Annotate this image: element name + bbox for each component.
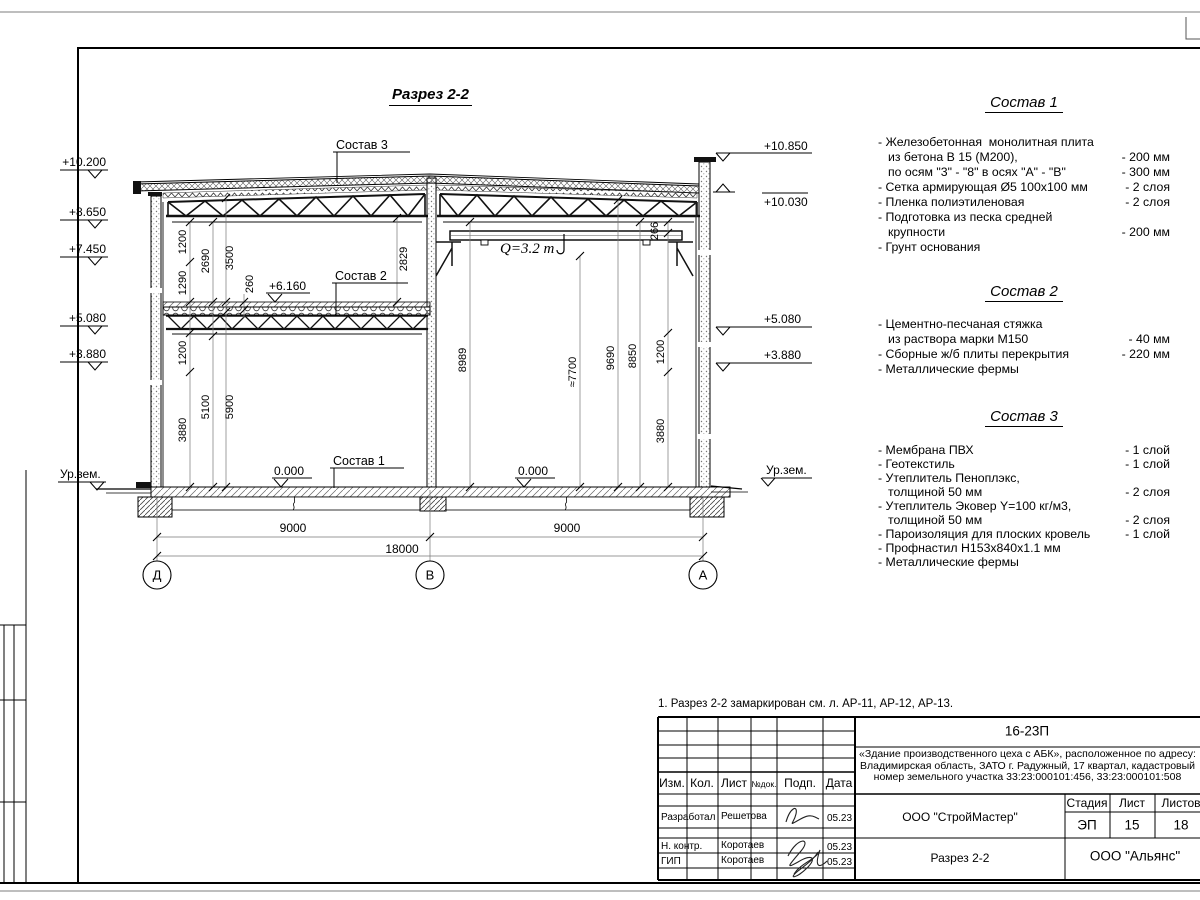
dim-2829: 2829: [398, 247, 410, 271]
level-zero-right: 0.000: [518, 464, 548, 478]
name-gip: Коротаев: [721, 855, 764, 866]
col-header-ndok: №док.: [752, 779, 777, 789]
dim-span-left: 9000: [280, 521, 307, 535]
composition-2-row: - Металлические фермы: [878, 362, 1170, 376]
contractor-company: ООО "СтройМастер": [902, 810, 1018, 824]
sheet-number: 15: [1124, 818, 1139, 833]
ground-level-right: Ур.зем.: [766, 463, 807, 477]
composition-2-row: - Цементно-песчаная стяжка: [878, 317, 1170, 331]
sheets-label: Листов: [1162, 796, 1200, 810]
composition-1-row: - Сетка армирующая Ø5 100х100 мм- 2 слоя: [878, 180, 1170, 194]
col-header-podp: Подп.: [784, 776, 816, 790]
callout-sostav-2: Состав 2: [335, 269, 387, 283]
date-developer: 05.23: [827, 813, 852, 824]
composition-3-title: Состав 3: [878, 408, 1170, 425]
composition-2-row: - Сборные ж/б плиты перекрытия- 220 мм: [878, 347, 1170, 361]
document-number: 16-23П: [1005, 724, 1049, 739]
date-gip: 05.23: [827, 857, 852, 868]
composition-1-row: - Пленка полиэтиленовая- 2 слоя: [878, 195, 1170, 209]
composition-3-row: - Утеплитель Пеноплэкс,: [878, 471, 1170, 485]
elevation-left-10200: +10.200: [46, 155, 106, 169]
grid-axis-a: А: [692, 568, 714, 583]
stage-label: Стадия: [1067, 796, 1108, 810]
name-ncontrol: Коротаев: [721, 840, 764, 851]
composition-2-row: из раствора марки М150- 40 мм: [878, 332, 1170, 346]
dim-9690: 9690: [605, 346, 617, 370]
elevation-right-10850: +10.850: [764, 139, 808, 153]
dim-1200-top: 1200: [177, 230, 189, 254]
dim-1200-right: 1200: [655, 340, 667, 364]
dim-3500: 3500: [224, 246, 236, 270]
dim-3880-right: 3880: [655, 419, 667, 443]
col-header-izm: Изм.: [659, 776, 685, 790]
level-zero-left: 0.000: [274, 464, 304, 478]
sheet-note: 1. Разрез 2-2 замаркирован см. л. АР-11,…: [658, 698, 953, 710]
signature-scribbles: [786, 808, 827, 876]
composition-1-row: - Грунт основания: [878, 240, 1170, 254]
sheet-section-name: Разрез 2-2: [931, 851, 990, 865]
callout-sostav-3: Состав 3: [336, 138, 388, 152]
composition-2-title: Состав 2: [878, 283, 1170, 300]
composition-1-row: - Подготовка из песка средней: [878, 210, 1170, 224]
dim-8989: 8989: [457, 348, 469, 372]
elevation-right-3880: +3.880: [764, 348, 801, 362]
dim-total: 18000: [385, 542, 418, 556]
dim-2690: 2690: [200, 249, 212, 273]
col-header-data: Дата: [826, 776, 853, 790]
grid-axis-v: В: [419, 568, 441, 583]
elevation-left-3880: +3.880: [46, 347, 106, 361]
project-description: «Здание производственного цеха с АБК», р…: [855, 749, 1200, 784]
elevation-left-5080: +5.080: [46, 311, 106, 325]
role-ncontrol: Н. контр.: [661, 841, 702, 852]
level-6160: +6.160: [269, 279, 306, 293]
elevation-right-10030: +10.030: [764, 195, 808, 209]
composition-3-row: - Геотекстиль- 1 слой: [878, 457, 1170, 471]
dim-8850: 8850: [627, 344, 639, 368]
dim-266: 266: [649, 222, 661, 240]
section-title: Разрез 2-2: [389, 86, 472, 106]
dim-span-right: 9000: [554, 521, 581, 535]
building-section: [96, 157, 748, 517]
grid-axis-d: Д: [146, 568, 168, 583]
composition-3-row: толщиной 50 мм- 2 слоя: [878, 485, 1170, 499]
composition-1-row: из бетона В 15 (М200),- 200 мм: [878, 150, 1170, 164]
elevation-left-8650: +8.650: [46, 205, 106, 219]
stage-value: ЭП: [1077, 818, 1096, 833]
composition-3-row: - Пароизоляция для плоских кровель- 1 сл…: [878, 527, 1170, 541]
composition-1-row: крупности- 200 мм: [878, 225, 1170, 239]
role-gip: ГИП: [661, 856, 681, 867]
composition-3-row: - Утеплитель Эковер Y=100 кг/м3,: [878, 499, 1170, 513]
composition-1-row: по осям "3" - "8" в осях "А" - "В"- 300 …: [878, 165, 1170, 179]
sheet-label: Лист: [1119, 796, 1145, 810]
name-developer: Решетова: [721, 811, 767, 822]
role-developer: Разработал: [661, 812, 715, 823]
composition-3-row: - Металлические фермы: [878, 555, 1170, 569]
composition-1-title: Состав 1: [878, 94, 1170, 111]
callout-sostav-1: Состав 1: [333, 454, 385, 468]
composition-3-row: - Мембрана ПВХ- 1 слой: [878, 443, 1170, 457]
col-header-list: Лист: [721, 776, 747, 790]
sheets-total: 18: [1173, 818, 1188, 833]
elevation-left-7450: +7.450: [46, 242, 106, 256]
composition-1-row: - Железобетонная монолитная плита: [878, 135, 1170, 149]
ground-level-left: Ур.зем.: [60, 467, 101, 481]
elevation-right-5080: +5.080: [764, 312, 801, 326]
composition-3-row: толщиной 50 мм- 2 слоя: [878, 513, 1170, 527]
dim-7700: ≈7700: [567, 357, 579, 388]
dim-5100: 5100: [200, 395, 212, 419]
drawing-sheet: Разрез 2-2 +10.200 +8.650 +7.450 +5.080 …: [0, 0, 1200, 900]
dim-3880-left: 3880: [177, 418, 189, 442]
crane-capacity-label: Q=3.2 т: [500, 241, 554, 258]
dim-1290: 1290: [177, 271, 189, 295]
dim-1200-mid: 1200: [177, 341, 189, 365]
design-org: ООО "Альянс": [1090, 849, 1180, 864]
col-header-kol: Кол.: [690, 776, 714, 790]
dim-5900: 5900: [224, 395, 236, 419]
composition-3-row: - Профнастил Н153х840х1.1 мм: [878, 541, 1170, 555]
dim-260: 260: [244, 275, 256, 293]
date-ncontrol: 05.23: [827, 842, 852, 853]
